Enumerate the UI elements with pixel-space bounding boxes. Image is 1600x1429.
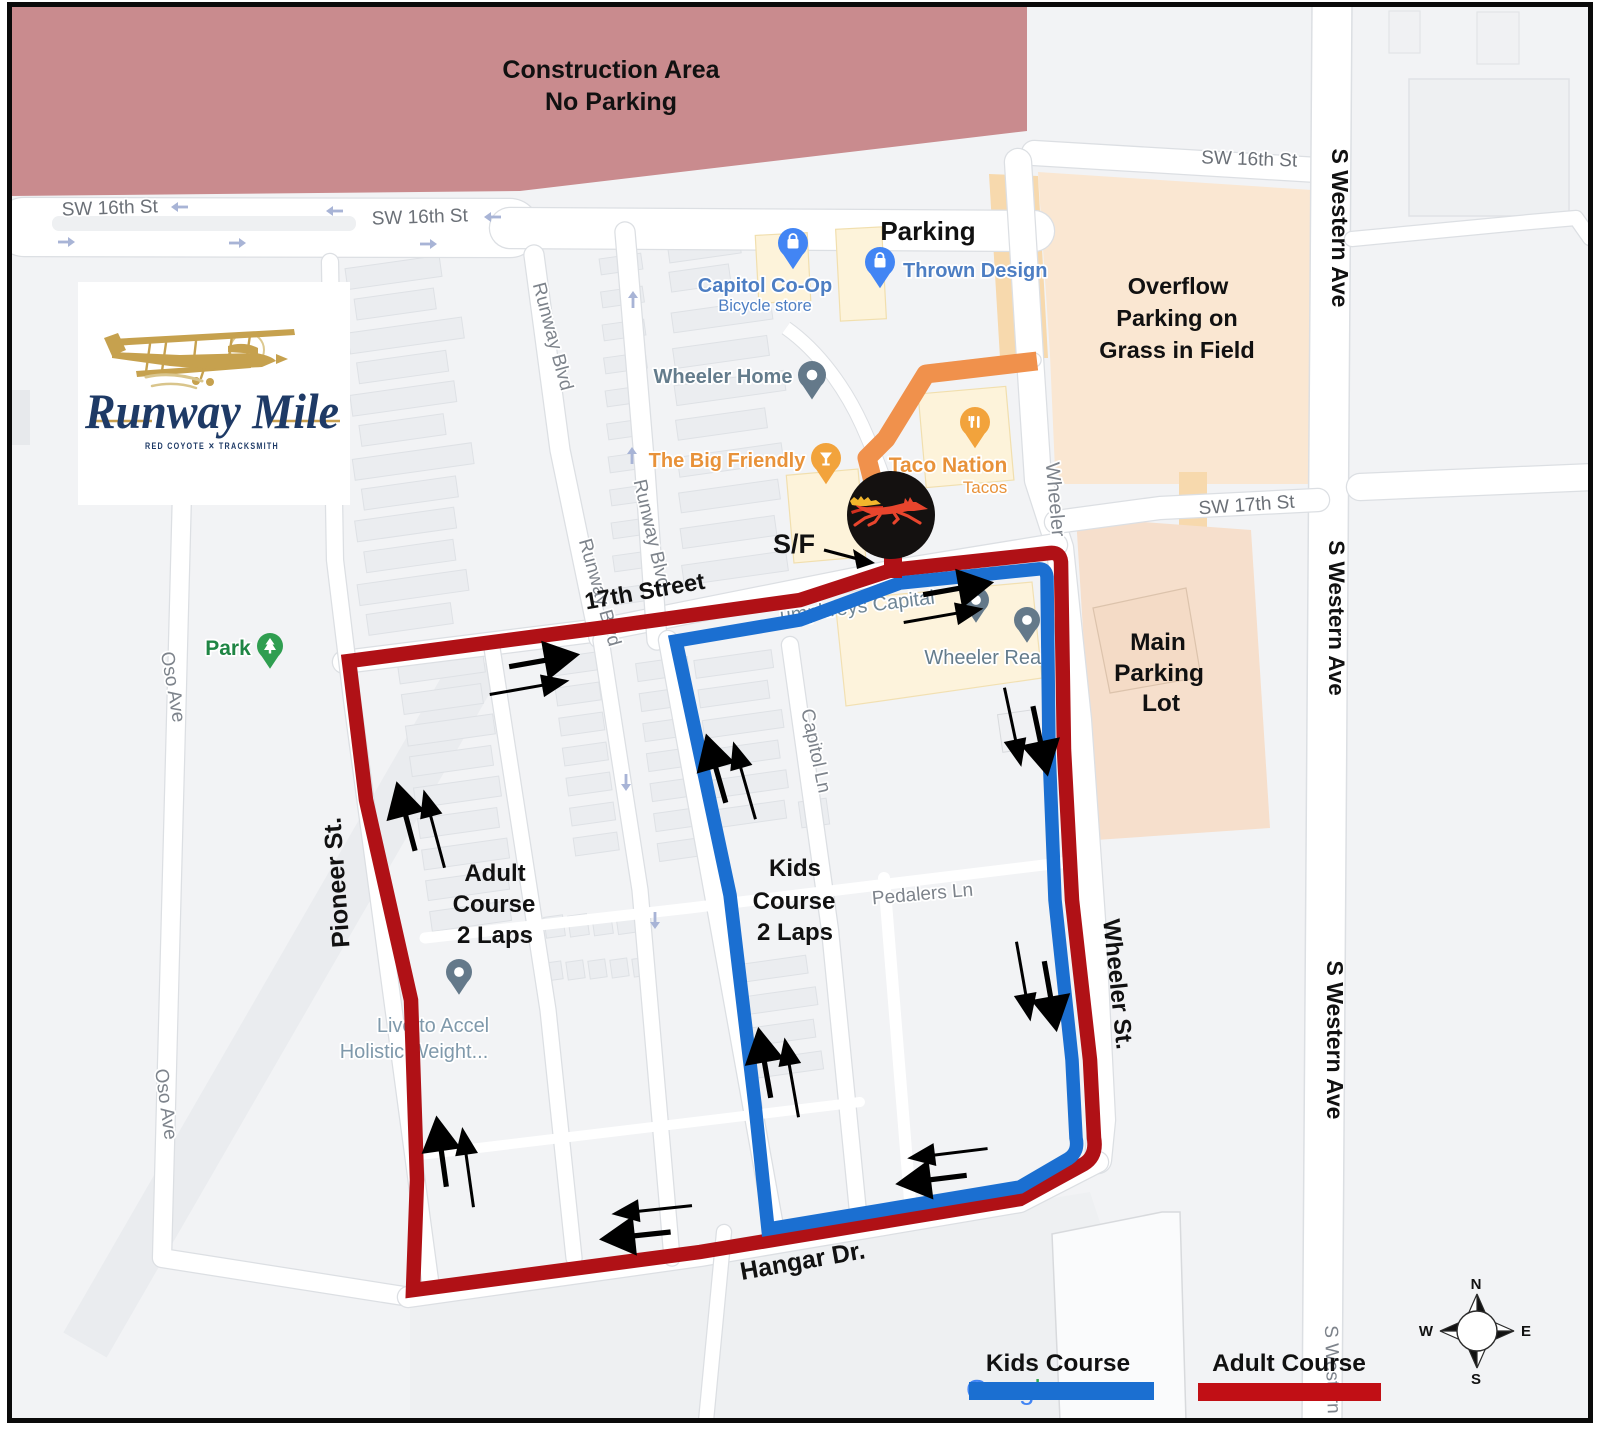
svg-text:Lot: Lot xyxy=(1142,690,1180,717)
svg-text:Bicycle store: Bicycle store xyxy=(718,297,812,315)
svg-text:SW 16th St: SW 16th St xyxy=(61,196,158,220)
svg-text:E: E xyxy=(1521,1323,1531,1340)
svg-text:Live to Accel: Live to Accel xyxy=(377,1015,489,1037)
svg-text:Adult Course: Adult Course xyxy=(1212,1350,1366,1377)
svg-text:No Parking: No Parking xyxy=(545,88,677,116)
svg-text:Wheeler Home: Wheeler Home xyxy=(654,366,793,388)
svg-text:Wheeler Real: Wheeler Real xyxy=(924,647,1045,669)
svg-text:Parking on: Parking on xyxy=(1116,305,1237,331)
svg-text:Course: Course xyxy=(753,888,836,915)
svg-text:S Western Ave: S Western Ave xyxy=(1327,149,1353,308)
svg-text:Tacos: Tacos xyxy=(963,478,1007,497)
svg-text:Adult: Adult xyxy=(464,860,525,887)
svg-text:S/F: S/F xyxy=(773,529,815,559)
svg-text:2 Laps: 2 Laps xyxy=(457,922,533,949)
svg-text:N: N xyxy=(1471,1276,1482,1293)
svg-text:Parking: Parking xyxy=(1114,660,1204,687)
svg-text:Kids: Kids xyxy=(769,855,821,882)
svg-text:S Western Ave: S Western Ave xyxy=(1322,961,1348,1120)
svg-text:S Western Ave: S Western Ave xyxy=(1324,540,1349,695)
svg-text:Park: Park xyxy=(205,637,251,660)
svg-text:Capitol Co-Op: Capitol Co-Op xyxy=(698,275,832,297)
svg-text:2 Laps: 2 Laps xyxy=(757,919,833,946)
svg-text:The Big Friendly: The Big Friendly xyxy=(649,450,807,472)
svg-text:S: S xyxy=(1471,1371,1481,1388)
svg-text:RED COYOTE ✕ TRACKSMITH: RED COYOTE ✕ TRACKSMITH xyxy=(145,441,279,451)
svg-text:Runway Mile: Runway Mile xyxy=(84,383,339,439)
svg-text:Main: Main xyxy=(1130,629,1186,656)
svg-text:SW 16th St: SW 16th St xyxy=(371,205,468,229)
svg-text:Parking: Parking xyxy=(880,216,975,246)
svg-text:Course: Course xyxy=(453,891,536,918)
svg-text:Kids Course: Kids Course xyxy=(986,1350,1130,1377)
svg-text:Construction Area: Construction Area xyxy=(502,56,720,84)
svg-text:SW 16th St: SW 16th St xyxy=(1201,147,1298,171)
svg-text:Grass in Field: Grass in Field xyxy=(1099,337,1254,363)
svg-text:Overflow: Overflow xyxy=(1128,273,1229,299)
svg-text:Taco Nation: Taco Nation xyxy=(889,454,1008,477)
svg-text:W: W xyxy=(1419,1323,1434,1340)
svg-text:Thrown Design: Thrown Design xyxy=(903,260,1047,282)
